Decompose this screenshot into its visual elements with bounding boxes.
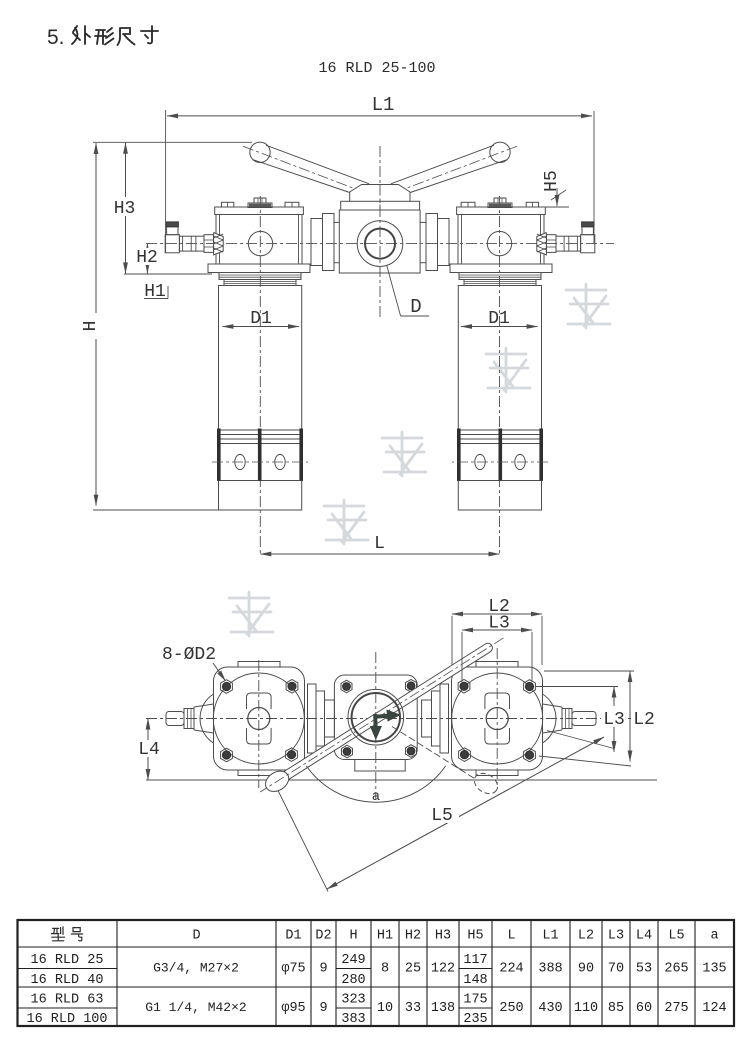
svg-text:φ95: φ95: [281, 1001, 305, 1016]
svg-text:L3: L3: [608, 929, 624, 944]
svg-text:G3/4, M27×2: G3/4, M27×2: [153, 961, 239, 976]
svg-text:25: 25: [405, 962, 421, 977]
svg-text:249: 249: [341, 953, 365, 968]
svg-text:110: 110: [574, 1001, 598, 1016]
svg-text:138: 138: [431, 1001, 455, 1016]
svg-text:H5: H5: [542, 170, 562, 192]
svg-text:250: 250: [499, 1001, 523, 1016]
svg-text:D1: D1: [488, 309, 510, 329]
svg-text:G1 1/4, M42×2: G1 1/4, M42×2: [145, 1000, 246, 1015]
svg-text:70: 70: [608, 962, 624, 977]
svg-text:8-ØD2: 8-ØD2: [162, 645, 216, 665]
svg-text:9: 9: [319, 1001, 327, 1016]
svg-text:L2: L2: [633, 710, 655, 730]
svg-text:L4: L4: [138, 740, 160, 760]
svg-text:175: 175: [463, 993, 487, 1008]
svg-text:60: 60: [636, 1001, 652, 1016]
svg-text:H: H: [81, 321, 101, 332]
svg-text:L2: L2: [578, 929, 594, 944]
svg-text:H: H: [349, 929, 357, 944]
svg-text:117: 117: [463, 953, 487, 968]
svg-text:8: 8: [381, 962, 389, 977]
svg-text:φ75: φ75: [281, 962, 305, 977]
svg-text:L5: L5: [668, 929, 684, 944]
svg-text:148: 148: [463, 973, 487, 988]
svg-text:383: 383: [341, 1012, 365, 1027]
svg-text:a: a: [710, 929, 718, 944]
svg-text:5.: 5.: [47, 26, 65, 49]
svg-text:16 RLD 100: 16 RLD 100: [26, 1012, 107, 1027]
svg-text:430: 430: [538, 1001, 562, 1016]
svg-text:L5: L5: [431, 806, 453, 826]
svg-text:16 RLD 63: 16 RLD 63: [31, 993, 104, 1008]
svg-text:L3: L3: [603, 710, 625, 730]
svg-text:H1: H1: [377, 929, 393, 944]
svg-text:H2: H2: [136, 248, 158, 268]
svg-text:9: 9: [319, 962, 327, 977]
svg-text:L1: L1: [542, 929, 558, 944]
svg-text:275: 275: [664, 1001, 688, 1016]
svg-text:16 RLD 25-100: 16 RLD 25-100: [318, 60, 435, 77]
svg-text:L: L: [374, 534, 385, 554]
svg-text:H1: H1: [144, 282, 166, 302]
svg-text:16 RLD 40: 16 RLD 40: [31, 973, 104, 988]
svg-text:L: L: [507, 929, 515, 944]
svg-text:D1: D1: [285, 929, 301, 944]
svg-text:280: 280: [341, 973, 365, 988]
svg-text:L4: L4: [636, 929, 652, 944]
svg-text:H2: H2: [405, 929, 421, 944]
svg-text:D: D: [192, 929, 200, 944]
svg-text:H3: H3: [114, 199, 136, 219]
svg-text:224: 224: [499, 962, 523, 977]
svg-text:85: 85: [608, 1001, 624, 1016]
svg-text:L1: L1: [372, 94, 395, 116]
svg-text:53: 53: [636, 962, 652, 977]
svg-text:235: 235: [463, 1012, 487, 1027]
svg-text:H5: H5: [467, 929, 483, 944]
svg-text:16 RLD 25: 16 RLD 25: [31, 953, 104, 968]
svg-text:D2: D2: [315, 929, 331, 944]
svg-text:10: 10: [377, 1001, 393, 1016]
svg-text:33: 33: [405, 1001, 421, 1016]
svg-text:122: 122: [431, 962, 455, 977]
svg-text:D: D: [410, 296, 421, 318]
svg-text:323: 323: [341, 993, 365, 1008]
svg-text:265: 265: [664, 962, 688, 977]
svg-text:L3: L3: [488, 614, 510, 634]
svg-text:90: 90: [578, 962, 594, 977]
svg-text:135: 135: [702, 962, 726, 977]
svg-text:H3: H3: [435, 929, 451, 944]
svg-text:D1: D1: [250, 309, 272, 329]
svg-text:388: 388: [538, 962, 562, 977]
svg-text:124: 124: [702, 1001, 726, 1016]
svg-text:a: a: [372, 789, 380, 805]
